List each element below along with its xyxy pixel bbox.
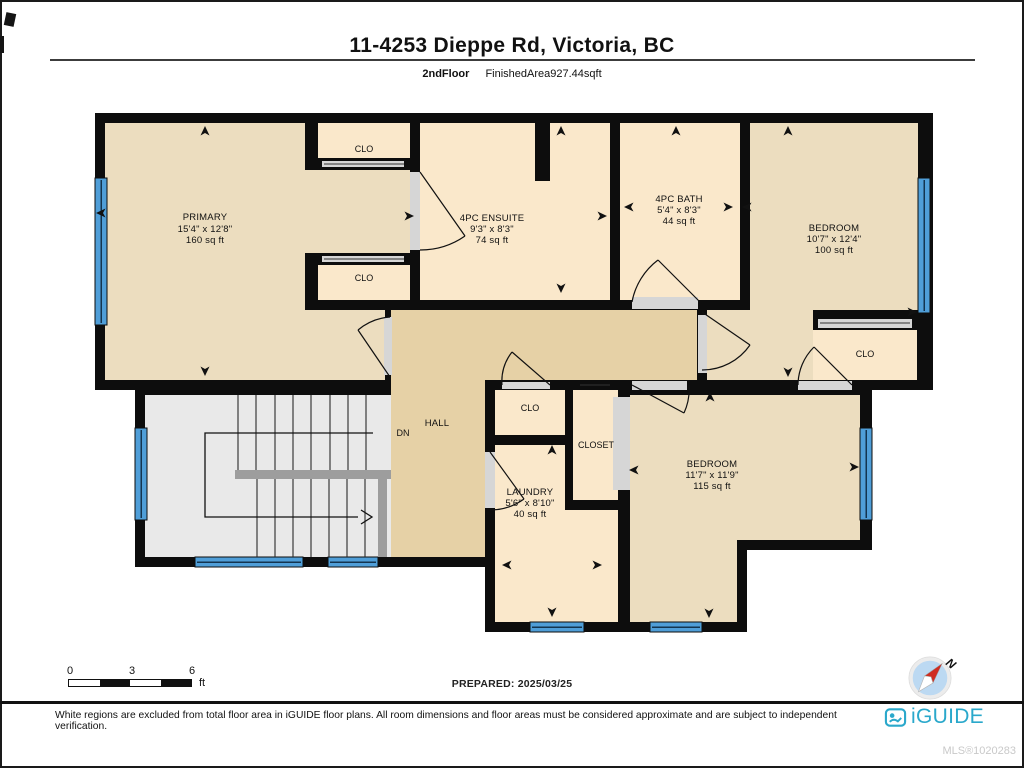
window-stairs-left xyxy=(135,428,147,520)
iguide-logo: iGUIDE xyxy=(884,705,984,729)
stair-side-edge xyxy=(378,479,387,557)
iguide-logo-text: iGUIDE xyxy=(911,705,984,729)
compass: N xyxy=(902,648,958,709)
footer-divider xyxy=(0,701,1024,704)
window-stairs-bottom-1 xyxy=(195,557,303,567)
closet-label: CLOSET xyxy=(578,440,615,450)
prepared-date: PREPARED: 2025/03/25 xyxy=(0,678,1024,690)
window-laundry-bottom xyxy=(530,622,584,632)
wall-stub xyxy=(308,300,415,310)
laundry-dims: 5'6" x 8'10" xyxy=(505,498,554,509)
bedroom-right-dims: 10'7" x 12'4" xyxy=(807,234,862,245)
clo-top-label: CLO xyxy=(355,144,374,154)
bedroom-right-label: BEDROOM xyxy=(809,223,860,234)
floorplan-drawing: PRIMARY 15'4" x 12'8" 160 sq ft CLO CLO … xyxy=(0,0,1024,700)
window-bedroom-right xyxy=(918,178,930,313)
ensuite-label: 4PC ENSUITE xyxy=(460,213,525,224)
door-gap-ensuite xyxy=(410,172,420,250)
hall-label: HALL xyxy=(425,418,450,429)
door-gap-closet xyxy=(613,397,630,490)
laundry-label: LAUNDRY xyxy=(507,487,554,498)
primary-area: 160 sq ft xyxy=(186,235,224,246)
primary-label: PRIMARY xyxy=(183,212,228,223)
bedroom-bottom-label: BEDROOM xyxy=(687,459,738,470)
bedroom-bottom-area: 115 sq ft xyxy=(693,481,731,492)
door-gap-bath xyxy=(632,297,698,309)
scale-tick-6: 6 xyxy=(182,665,202,677)
bedroom-right-vestibule xyxy=(707,310,813,380)
clo-hall-label: CLO xyxy=(521,403,540,413)
stair-landing-edge xyxy=(235,470,391,479)
window-primary-left xyxy=(95,178,107,325)
disclaimer-text: White regions are excluded from total fl… xyxy=(55,710,855,732)
primary-closet-passage xyxy=(313,170,410,253)
scale-tick-0: 0 xyxy=(65,665,75,677)
door-gap-clo-hall xyxy=(502,382,550,389)
bedroom-bottom-dims: 11'7" x 11'9" xyxy=(685,470,738,481)
window-bedroom-bottom-right xyxy=(860,428,872,520)
window-bedroom-bottom xyxy=(650,622,702,632)
bath-area: 44 sq ft xyxy=(663,216,696,227)
clo-mid-label: CLO xyxy=(355,273,374,283)
mls-number: MLS®1020283 xyxy=(942,745,1016,757)
primary-dims: 15'4" x 12'8" xyxy=(178,224,233,235)
bath-dims: 5'4" x 8'3" xyxy=(657,205,701,216)
wall-stub xyxy=(535,113,550,181)
compass-icon: N xyxy=(902,648,958,704)
door-gap-bedroom-bottom-1 xyxy=(632,381,687,390)
bath-label: 4PC BATH xyxy=(655,194,702,205)
laundry-area: 40 sq ft xyxy=(514,509,547,520)
door-gap-bedroom-bottom-2 xyxy=(798,381,852,390)
window-stairs-bottom-2 xyxy=(328,557,378,567)
scale-tick-3: 3 xyxy=(122,665,142,677)
room-bedroom-right xyxy=(750,123,918,310)
door-gap-hall-vestibule xyxy=(698,315,707,373)
door-gap-laundry xyxy=(485,452,495,508)
door-gap-primary xyxy=(384,317,392,375)
ensuite-area: 74 sq ft xyxy=(476,235,509,246)
bedroom-right-area: 100 sq ft xyxy=(815,245,853,256)
room-bedroom-bottom-lower xyxy=(630,395,737,622)
ensuite-dims: 9'3" x 8'3" xyxy=(470,224,514,235)
iguide-logo-icon xyxy=(884,706,907,729)
stairs-dn-label: DN xyxy=(397,428,410,438)
clo-bedroom-label: CLO xyxy=(856,349,875,359)
floorplan-page: 11-4253 Dieppe Rd, Victoria, BC 2ndFloor… xyxy=(0,0,1024,768)
